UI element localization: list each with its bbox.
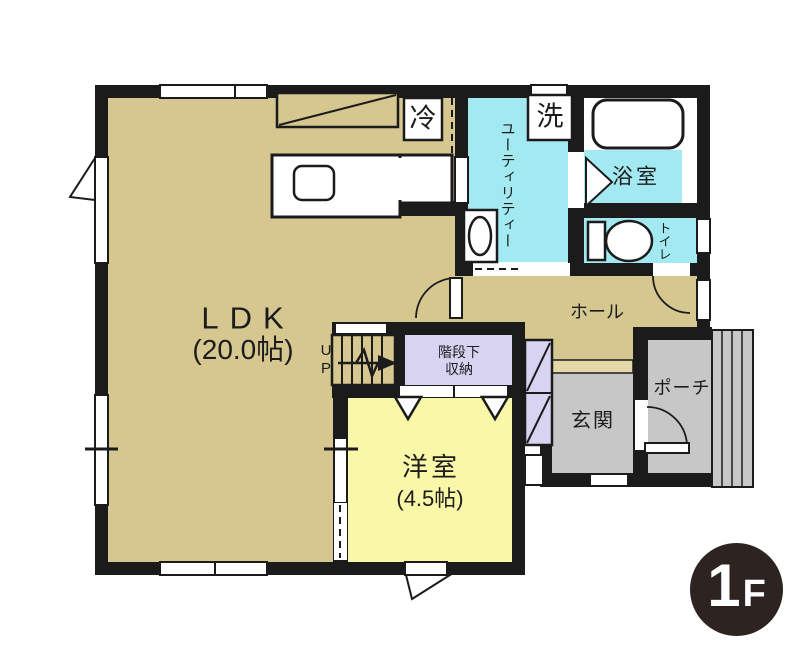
kitchen-sink (294, 166, 334, 200)
front-door-leaf (645, 443, 689, 453)
opening-storage-door-2 (455, 386, 507, 397)
utility-label: ユーティリティー (500, 121, 515, 249)
ldk-door-leaf (450, 278, 462, 318)
entrance-step (552, 360, 633, 373)
stairs-divider (395, 335, 405, 385)
porch-label: ポーチ (654, 379, 711, 397)
floor-plan: LDK (20.0帖) 冷 洗 ユーティリティー 浴室 トイレ ホール UP 階… (0, 0, 800, 650)
entrance-label: 玄関 (571, 411, 615, 431)
floor-level-number: 1 (707, 556, 740, 616)
opening-counter-pass (455, 157, 468, 203)
storage-floor (405, 335, 512, 385)
bathroom-label: 浴室 (612, 167, 660, 188)
storage-label-line2: 収納 (445, 362, 473, 376)
hall-label: ホール (570, 303, 624, 321)
refrigerator-label: 冷 (410, 106, 437, 133)
back-door-swing (70, 158, 95, 200)
toilet-label: トイレ (658, 222, 671, 261)
window-right-hall (697, 280, 710, 320)
hall-floor (400, 276, 697, 330)
western-room-label: 洋室 (402, 454, 460, 480)
western-room-size: (4.5帖) (396, 488, 463, 510)
wall-porch-top (633, 327, 712, 340)
door-back-left (95, 157, 108, 263)
wall-storage-right (512, 322, 525, 575)
bathtub (593, 100, 683, 148)
window-bottom-western (405, 562, 447, 575)
toilet-tank (588, 222, 605, 260)
storage-label-line1: 階段下 (438, 345, 480, 359)
ldk-size-label: (20.0帖) (192, 336, 293, 364)
wall-bath-toilet (568, 203, 710, 218)
opening-storage-door-1 (400, 386, 453, 397)
opening-toilet-door (653, 263, 690, 276)
floor-level-badge: 1 F (690, 543, 783, 636)
washer-label: 洗 (537, 104, 564, 131)
window-top-ldk (160, 85, 267, 98)
opening-corner-niche (525, 455, 543, 485)
western-door-swing (406, 575, 450, 599)
stairs-up-label: UP (319, 342, 334, 378)
opening-bath-door (568, 152, 584, 208)
opening-utility-hall (523, 263, 570, 276)
window-right-toilet (697, 219, 710, 253)
toilet-bowl (606, 221, 652, 261)
stairs (332, 335, 405, 385)
floor-level-suffix: F (743, 575, 766, 613)
window-entrance-bottom (590, 474, 628, 486)
window-bottom-ldk (160, 562, 267, 575)
ldk-label: LDK (201, 303, 294, 334)
washstand-basin (469, 217, 491, 255)
floor-plan-drawing (0, 0, 800, 650)
opening-stairs-top (335, 323, 387, 334)
